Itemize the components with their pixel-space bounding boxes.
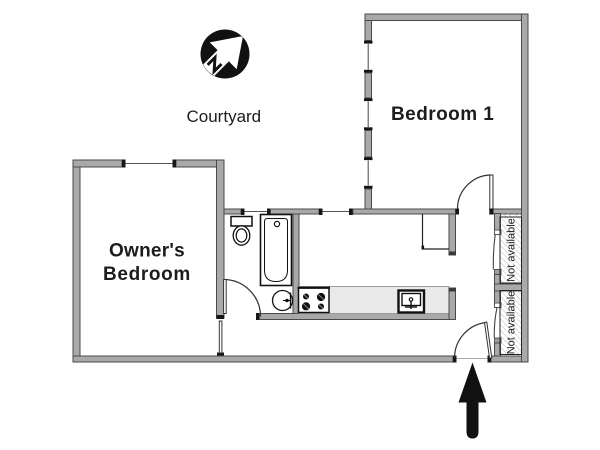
svg-text:Bedroom: Bedroom [103, 264, 191, 285]
svg-text:Bedroom 1: Bedroom 1 [391, 104, 494, 125]
svg-text:Owner's: Owner's [109, 241, 185, 262]
svg-text:Not available: Not available [506, 218, 518, 282]
svg-text:Courtyard: Courtyard [187, 107, 262, 126]
svg-text:Not available: Not available [506, 291, 518, 355]
